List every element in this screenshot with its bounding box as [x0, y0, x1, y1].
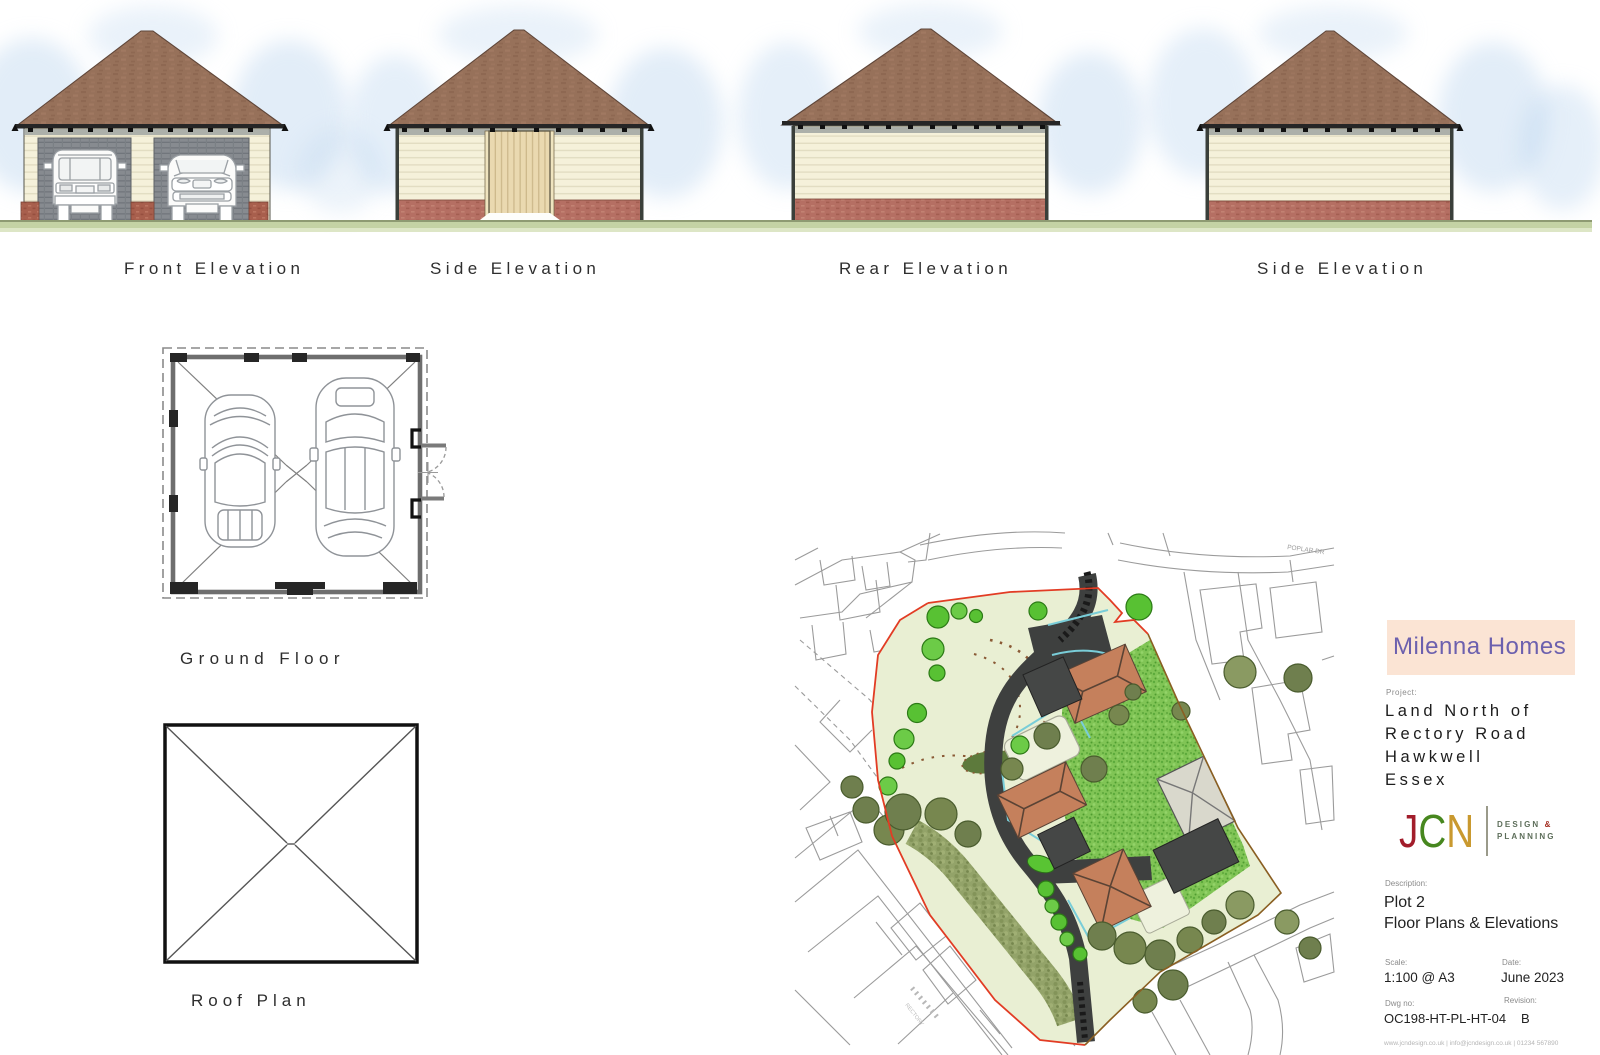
svg-text:POPLAR DR: POPLAR DR: [1287, 544, 1325, 556]
svg-text:RECTORY: RECTORY: [903, 1003, 924, 1028]
